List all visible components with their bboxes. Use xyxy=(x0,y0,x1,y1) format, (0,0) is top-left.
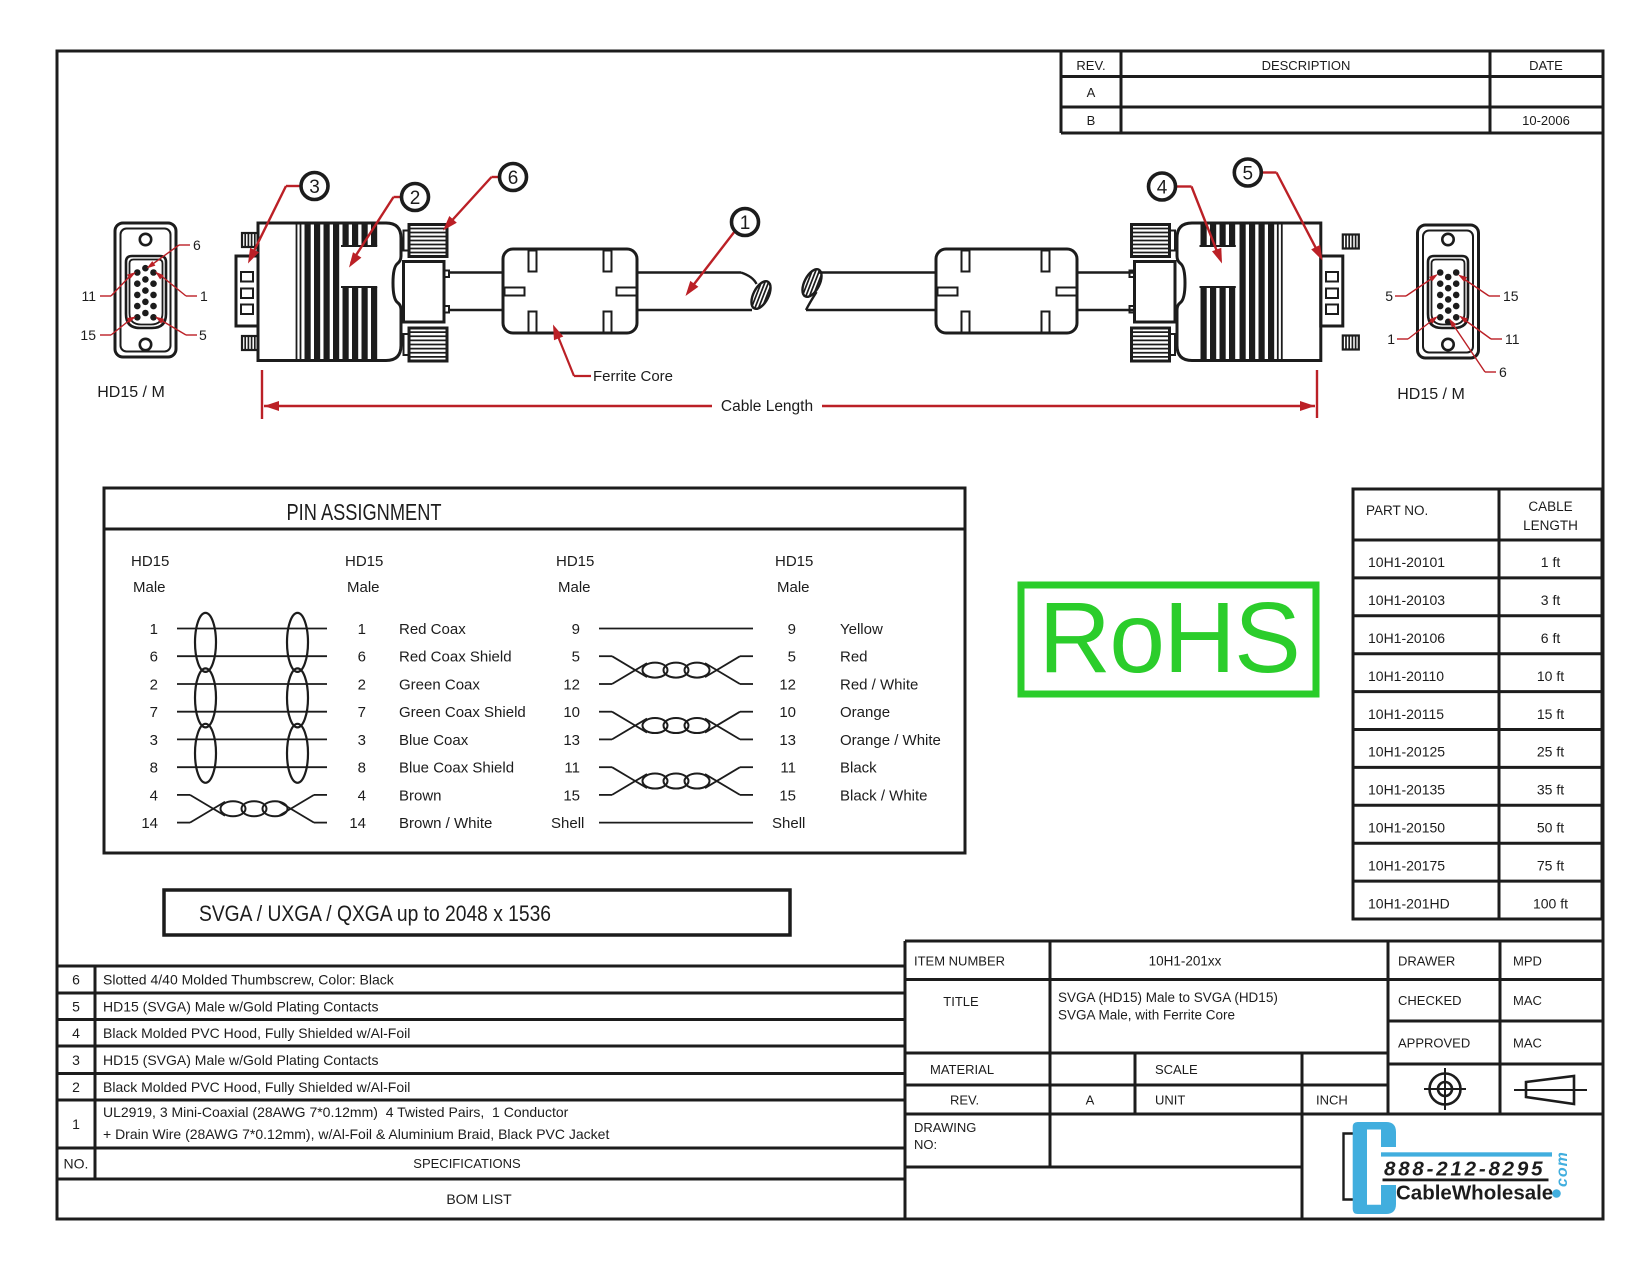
svg-text:5: 5 xyxy=(199,327,207,343)
svg-text:1: 1 xyxy=(740,213,751,234)
svg-text:75 ft: 75 ft xyxy=(1537,857,1564,873)
svg-text:3: 3 xyxy=(150,732,158,749)
svg-text:Yellow: Yellow xyxy=(840,621,883,638)
svg-text:UL2919, 3 Mini-Coaxial (28AWG: UL2919, 3 Mini-Coaxial (28AWG 7*0.12mm) … xyxy=(103,1104,569,1120)
svg-text:Blue Coax: Blue Coax xyxy=(399,732,469,749)
svg-text:10: 10 xyxy=(563,704,580,721)
svg-text:SCALE: SCALE xyxy=(1155,1062,1198,1077)
svg-text:15: 15 xyxy=(779,787,796,804)
svg-text:A: A xyxy=(1086,1093,1095,1108)
svg-text:com: com xyxy=(1554,1151,1571,1187)
svg-text:Brown / White: Brown / White xyxy=(399,815,492,832)
svg-text:1: 1 xyxy=(150,621,158,638)
svg-text:12: 12 xyxy=(779,676,796,693)
svg-text:HD15 (SVGA) Male w/Gold Platin: HD15 (SVGA) Male w/Gold Plating Contacts xyxy=(103,1052,378,1068)
svg-text:11: 11 xyxy=(81,288,96,304)
svg-text:10H1-20106: 10H1-20106 xyxy=(1368,630,1445,646)
svg-text:Black / White: Black / White xyxy=(840,787,928,804)
svg-text:5: 5 xyxy=(572,649,580,666)
svg-text:RoHS: RoHS xyxy=(1039,582,1300,694)
svg-text:8: 8 xyxy=(358,760,366,777)
svg-text:SVGA (HD15) Male to SVGA (HD15: SVGA (HD15) Male to SVGA (HD15) xyxy=(1058,990,1278,1005)
svg-text:6: 6 xyxy=(150,649,158,666)
svg-text:5: 5 xyxy=(1385,288,1393,304)
svg-text:10H1-20175: 10H1-20175 xyxy=(1368,857,1445,873)
svg-text:10-2006: 10-2006 xyxy=(1522,113,1570,128)
svg-text:B: B xyxy=(1087,113,1096,128)
svg-text:12: 12 xyxy=(563,676,580,693)
svg-text:7: 7 xyxy=(150,704,158,721)
svg-text:PART NO.: PART NO. xyxy=(1366,503,1428,518)
svg-text:+ Drain Wire (28AWG 7*0.12mm),: + Drain Wire (28AWG 7*0.12mm), w/Al-Foil… xyxy=(103,1126,609,1142)
svg-text:100 ft: 100 ft xyxy=(1533,895,1568,911)
svg-text:Green Coax Shield: Green Coax Shield xyxy=(399,704,526,721)
svg-text:CHECKED: CHECKED xyxy=(1398,993,1462,1008)
svg-text:10 ft: 10 ft xyxy=(1537,668,1564,684)
svg-text:1: 1 xyxy=(200,288,208,304)
svg-text:Orange / White: Orange / White xyxy=(840,732,941,749)
svg-text:13: 13 xyxy=(779,732,796,749)
svg-text:8: 8 xyxy=(150,760,158,777)
svg-text:HD15: HD15 xyxy=(556,553,594,570)
svg-text:DATE: DATE xyxy=(1529,58,1563,73)
svg-text:10H1-20103: 10H1-20103 xyxy=(1368,592,1445,608)
svg-text:6 ft: 6 ft xyxy=(1541,630,1561,646)
svg-text:1: 1 xyxy=(72,1116,80,1132)
svg-text:BOM LIST: BOM LIST xyxy=(446,1191,512,1207)
svg-text:15: 15 xyxy=(563,787,580,804)
svg-text:Brown: Brown xyxy=(399,787,442,804)
svg-text:Slotted 4/40 Molded Thumbscrew: Slotted 4/40 Molded Thumbscrew, Color: B… xyxy=(103,972,395,988)
svg-text:Ferrite Core: Ferrite Core xyxy=(593,368,673,385)
svg-text:13: 13 xyxy=(563,732,580,749)
svg-text:CableWholesale: CableWholesale xyxy=(1396,1182,1553,1205)
svg-text:Male: Male xyxy=(777,579,810,596)
svg-text:3: 3 xyxy=(309,177,320,198)
svg-text:Red Coax Shield: Red Coax Shield xyxy=(399,649,512,666)
svg-text:Orange: Orange xyxy=(840,704,890,721)
svg-text:6: 6 xyxy=(508,168,519,189)
svg-text:SVGA / UXGA / QXGA up to 2048: SVGA / UXGA / QXGA up to 2048 x 1536 xyxy=(199,901,551,926)
svg-text:APPROVED: APPROVED xyxy=(1398,1036,1470,1051)
svg-text:HD15: HD15 xyxy=(131,553,169,570)
svg-text:11: 11 xyxy=(1505,331,1520,347)
svg-text:35 ft: 35 ft xyxy=(1537,782,1564,798)
svg-text:Black Molded PVC Hood, Fully S: Black Molded PVC Hood, Fully Shielded w/… xyxy=(103,1025,410,1041)
svg-text:1: 1 xyxy=(1387,331,1395,347)
svg-text:888-212-8295: 888-212-8295 xyxy=(1384,1158,1545,1181)
svg-text:HD15: HD15 xyxy=(775,553,813,570)
svg-text:15: 15 xyxy=(1503,288,1519,304)
svg-text:HD15 / M: HD15 / M xyxy=(1397,386,1465,403)
svg-text:25 ft: 25 ft xyxy=(1537,744,1564,760)
svg-text:MATERIAL: MATERIAL xyxy=(930,1062,994,1077)
svg-text:Green Coax: Green Coax xyxy=(399,676,480,693)
svg-text:TITLE: TITLE xyxy=(943,994,979,1009)
svg-text:REV.: REV. xyxy=(1076,58,1105,73)
svg-text:A: A xyxy=(1087,85,1096,100)
svg-text:PIN ASSIGNMENT: PIN ASSIGNMENT xyxy=(287,499,442,525)
svg-text:Shell: Shell xyxy=(551,815,584,832)
svg-text:3: 3 xyxy=(72,1052,80,1068)
svg-text:2: 2 xyxy=(150,676,158,693)
svg-text:Blue Coax Shield: Blue Coax Shield xyxy=(399,760,514,777)
svg-text:2: 2 xyxy=(358,676,366,693)
svg-text:DESCRIPTION: DESCRIPTION xyxy=(1262,58,1351,73)
svg-text:10H1-20110: 10H1-20110 xyxy=(1368,668,1444,684)
svg-text:REV.: REV. xyxy=(950,1093,979,1108)
svg-text:Red / White: Red / White xyxy=(840,676,918,693)
svg-text:4: 4 xyxy=(358,787,366,804)
svg-text:10H1-20115: 10H1-20115 xyxy=(1368,706,1444,722)
svg-text:10H1-20101: 10H1-20101 xyxy=(1368,554,1445,570)
svg-text:11: 11 xyxy=(564,760,580,777)
svg-text:Male: Male xyxy=(558,579,591,596)
svg-text:1: 1 xyxy=(358,621,366,638)
svg-text:15 ft: 15 ft xyxy=(1537,706,1564,722)
svg-text:9: 9 xyxy=(788,621,796,638)
svg-text:11: 11 xyxy=(780,760,796,777)
svg-text:50 ft: 50 ft xyxy=(1537,819,1564,835)
svg-text:10H1-201HD: 10H1-201HD xyxy=(1368,895,1450,911)
svg-text:Male: Male xyxy=(133,579,166,596)
svg-text:Red: Red xyxy=(840,649,868,666)
svg-text:SPECIFICATIONS: SPECIFICATIONS xyxy=(413,1156,521,1171)
svg-text:6: 6 xyxy=(72,972,80,988)
svg-text:MPD: MPD xyxy=(1513,954,1542,969)
svg-text:UNIT: UNIT xyxy=(1155,1093,1185,1108)
svg-text:Cable Length: Cable Length xyxy=(721,398,813,415)
svg-text:ITEM NUMBER: ITEM NUMBER xyxy=(914,954,1005,969)
svg-text:7: 7 xyxy=(358,704,366,721)
svg-text:Red Coax: Red Coax xyxy=(399,621,466,638)
svg-text:DRAWER: DRAWER xyxy=(1398,954,1455,969)
svg-text:Black Molded PVC Hood, Fully S: Black Molded PVC Hood, Fully Shielded w/… xyxy=(103,1079,410,1095)
svg-text:14: 14 xyxy=(141,815,158,832)
svg-text:MAC: MAC xyxy=(1513,1036,1542,1051)
svg-text:9: 9 xyxy=(572,621,580,638)
svg-text:CABLE: CABLE xyxy=(1528,499,1572,514)
svg-text:6: 6 xyxy=(193,237,201,253)
svg-text:Black: Black xyxy=(840,760,877,777)
svg-text:14: 14 xyxy=(349,815,366,832)
svg-text:10: 10 xyxy=(779,704,796,721)
svg-text:INCH: INCH xyxy=(1316,1093,1348,1108)
svg-text:10H1-20150: 10H1-20150 xyxy=(1368,819,1445,835)
svg-text:Male: Male xyxy=(347,579,380,596)
svg-text:3: 3 xyxy=(358,732,366,749)
svg-text:4: 4 xyxy=(150,787,158,804)
svg-text:LENGTH: LENGTH xyxy=(1523,518,1578,533)
svg-text:6: 6 xyxy=(358,649,366,666)
svg-text:5: 5 xyxy=(788,649,796,666)
svg-text:2: 2 xyxy=(72,1079,80,1095)
svg-text:3 ft: 3 ft xyxy=(1541,592,1561,608)
svg-text:4: 4 xyxy=(72,1025,80,1041)
svg-text:HD15: HD15 xyxy=(345,553,383,570)
svg-text:10H1-201xx: 10H1-201xx xyxy=(1149,954,1222,969)
svg-text:2: 2 xyxy=(410,188,421,209)
svg-text:1 ft: 1 ft xyxy=(1541,554,1561,570)
svg-text:15: 15 xyxy=(80,327,96,343)
svg-text:6: 6 xyxy=(1499,364,1507,380)
svg-text:MAC: MAC xyxy=(1513,993,1542,1008)
svg-text:10H1-20125: 10H1-20125 xyxy=(1368,744,1445,760)
svg-text:SVGA Male, with Ferrite Core: SVGA Male, with Ferrite Core xyxy=(1058,1008,1235,1023)
svg-text:5: 5 xyxy=(1243,164,1254,185)
svg-text:DRAWING: DRAWING xyxy=(914,1120,976,1135)
svg-text:NO:: NO: xyxy=(914,1137,937,1152)
svg-text:10H1-20135: 10H1-20135 xyxy=(1368,782,1445,798)
svg-text:5: 5 xyxy=(72,998,80,1014)
svg-text:HD15 / M: HD15 / M xyxy=(97,384,165,401)
svg-text:Shell: Shell xyxy=(772,815,805,832)
svg-text:HD15 (SVGA) Male w/Gold Platin: HD15 (SVGA) Male w/Gold Plating Contacts xyxy=(103,998,378,1014)
svg-text:4: 4 xyxy=(1157,178,1168,199)
svg-text:NO.: NO. xyxy=(64,1156,89,1172)
